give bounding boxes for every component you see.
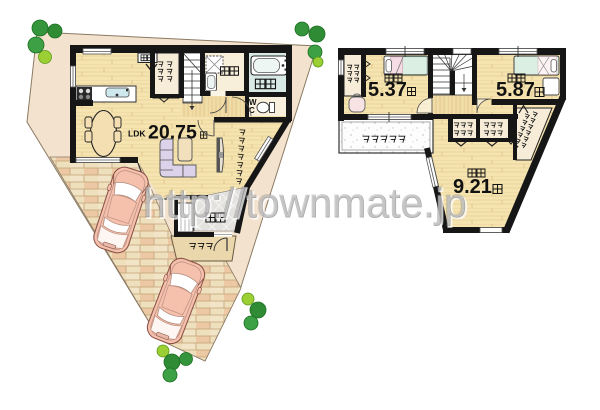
svg-text:5.37: 5.37	[368, 79, 407, 101]
svg-text:LDK: LDK	[128, 129, 146, 139]
svg-text:5.87: 5.87	[496, 79, 535, 101]
svg-text:20.75: 20.75	[148, 122, 197, 144]
svg-text:http://townmate.jp: http://townmate.jp	[143, 179, 467, 226]
